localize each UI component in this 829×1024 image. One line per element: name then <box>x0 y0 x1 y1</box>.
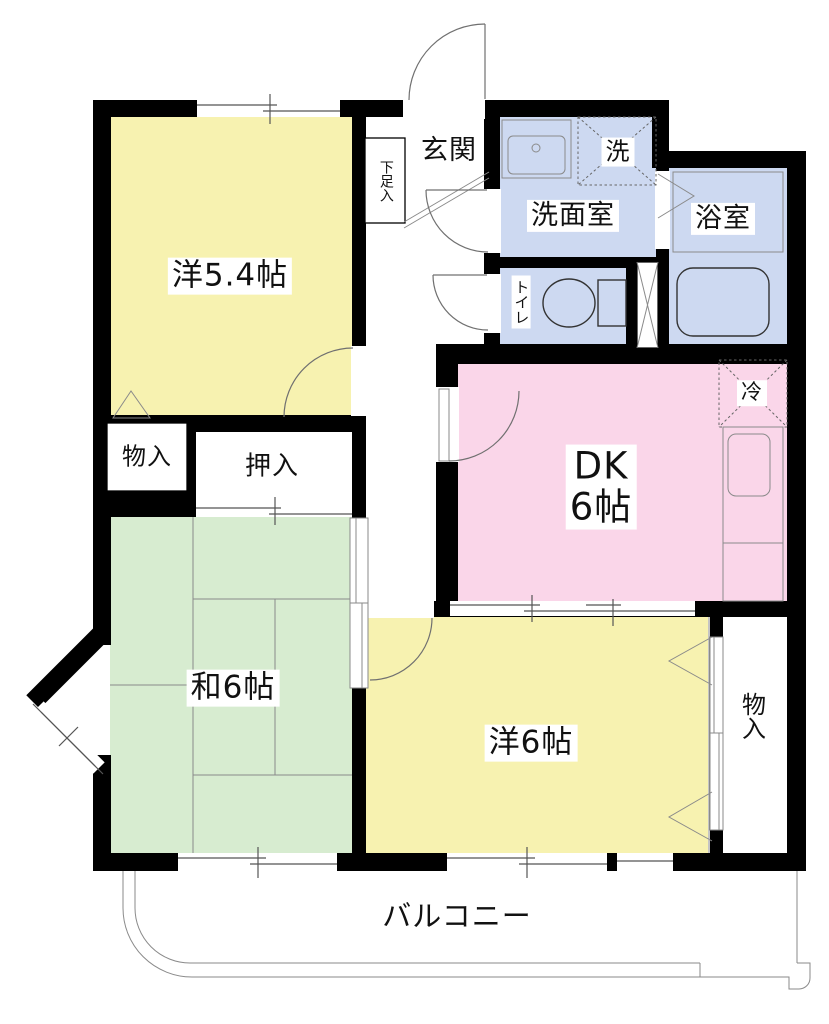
label-dk-line1: DK <box>570 446 633 487</box>
wall-center-column <box>352 100 366 853</box>
label-western-6: 洋6帖 <box>485 725 578 762</box>
label-japanese-6: 和6帖 <box>187 670 280 707</box>
label-dk-line2: 6帖 <box>570 487 633 528</box>
label-toilet: トイレ <box>512 276 531 329</box>
label-balcony: バルコニー <box>378 899 535 933</box>
wall-dk-top <box>436 344 806 364</box>
label-entrance: 玄関 <box>417 135 481 167</box>
label-shoe-cabinet: 下足入 <box>376 156 394 206</box>
label-bathroom: 浴室 <box>691 203 755 235</box>
bathroom-door-opening <box>655 171 670 249</box>
wall-storage-right-bottom <box>710 830 723 853</box>
label-closet: 押入 <box>241 451 303 482</box>
toilet-door-opening <box>483 274 501 333</box>
wall-storage-right-top <box>710 617 723 637</box>
window-bottom-western6-b <box>617 853 673 871</box>
label-dk: DK 6帖 <box>566 445 637 530</box>
wall-bath-top <box>652 151 806 168</box>
wall-dk-left <box>436 344 458 617</box>
label-storage-right: 物入 <box>737 688 766 744</box>
label-fridge: 冷 <box>737 380 767 406</box>
wall-left-upper <box>93 100 111 645</box>
floor-plan: 洋5.4帖 玄関 下足入 洗 洗面室 浴室 トイレ DK 6帖 冷 物入 押入 … <box>0 0 829 1024</box>
floor-plan-drawing <box>0 0 829 1024</box>
pipe-shaft <box>637 262 658 348</box>
entrance-door-opening <box>403 98 485 119</box>
label-washroom: 洗面室 <box>527 200 619 232</box>
western54-door-opening <box>351 346 367 416</box>
label-storage-left: 物入 <box>118 443 176 472</box>
label-washer: 洗 <box>602 138 635 167</box>
washroom-door-opening <box>483 189 501 253</box>
japanese6-sliding-door <box>350 518 368 688</box>
western6-door-opening <box>366 600 434 618</box>
wall-top <box>93 100 664 117</box>
label-western-5-4: 洋5.4帖 <box>168 258 292 295</box>
wall-right-outer <box>787 151 806 871</box>
